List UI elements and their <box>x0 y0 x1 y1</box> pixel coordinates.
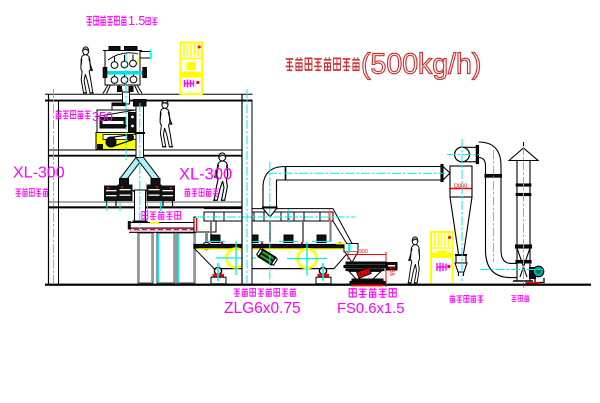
svg-text:1.5: 1.5 <box>128 14 145 28</box>
svg-text:XL-300: XL-300 <box>13 165 65 182</box>
svg-text:FS0.6x1.5: FS0.6x1.5 <box>337 301 404 317</box>
svg-text:350: 350 <box>92 110 113 124</box>
svg-text:(500kg/h): (500kg/h) <box>361 49 481 81</box>
svg-text:D800: D800 <box>454 184 467 190</box>
svg-text:ZLG6x0.75: ZLG6x0.75 <box>224 300 301 317</box>
svg-text:585: 585 <box>388 266 394 277</box>
svg-text:XL-300: XL-300 <box>179 166 232 184</box>
svg-text:1500: 1500 <box>357 249 368 255</box>
